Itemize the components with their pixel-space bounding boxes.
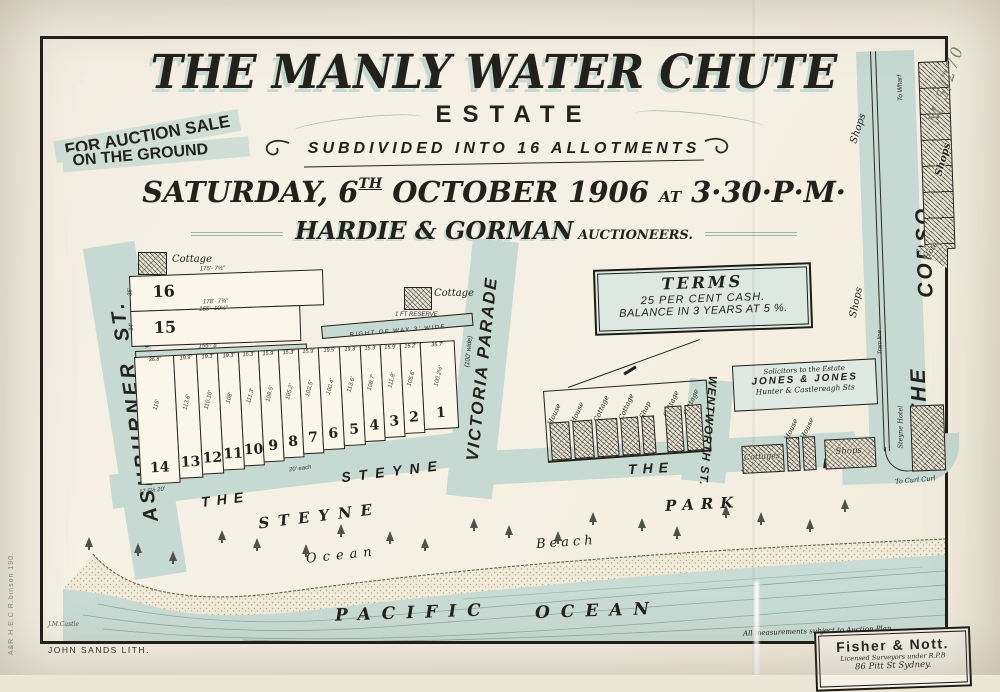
tree-icon	[421, 538, 429, 548]
steyne-right-the: THE	[628, 459, 675, 477]
buildings-block-right: Cottages House House Shops	[740, 413, 877, 474]
lot-number: 8	[288, 434, 299, 450]
paper-crease-highlight	[754, 582, 759, 675]
surveyor-signature: J.M.Castle	[48, 621, 79, 628]
lot-width: 19.5'	[323, 348, 335, 354]
lot-width: 15.3'	[282, 350, 294, 356]
auctioneers-name: HARDIE & GORMAN	[295, 216, 573, 245]
lot-width: 19.3'	[222, 353, 234, 359]
lot-depth: 111.8'	[387, 373, 397, 389]
lot-block-15-16: 175'· 7½" 35' 16 178'· 7¾" 155'· 10¼" 34…	[129, 269, 325, 346]
lot15-top-measure: 155'· 10¼"	[199, 305, 228, 312]
lot16-side-measure: 35'	[127, 288, 133, 296]
building-house: House	[801, 416, 817, 471]
lot-depth: 115'	[152, 399, 161, 411]
lot-number: 5	[349, 421, 360, 437]
lot-width: 19.3'	[201, 354, 213, 360]
cottage-1-label: Cottage	[172, 254, 212, 265]
building-hatch	[641, 415, 657, 454]
steyne-hotel-label: Steyne Hotel	[896, 406, 904, 449]
cottages-block: Cottages	[741, 444, 784, 474]
tree-icon	[638, 518, 646, 528]
date-time: 3·30·P·M·	[681, 175, 846, 209]
surveyors-box: Fisher & Nott. Licensed Surveyors under …	[814, 626, 972, 691]
lot-width: 15.9'	[262, 351, 274, 357]
tree-icon	[673, 526, 681, 536]
lot16-number: 16	[152, 281, 175, 301]
date-mid: OCTOBER 1906	[382, 175, 659, 209]
manly-water-chute-poster: { "header":{ "ribbon":["FOR AUCTION SALE…	[0, 0, 1000, 675]
poster-title: THE MANLY WATER CHUTE	[79, 45, 909, 100]
lot-width: 35.7'	[431, 342, 443, 348]
building-hatch	[572, 420, 595, 459]
lot-number: 12	[202, 450, 222, 467]
building-shop: Shop	[639, 384, 657, 454]
paper-fold	[752, 0, 755, 675]
tree-icon	[806, 519, 814, 529]
cottage-1-block	[138, 252, 167, 275]
date-superscript: TH	[358, 176, 382, 192]
lot-depth: 100.4'	[326, 379, 336, 396]
lot-depth: 110.10'	[204, 390, 215, 410]
building-house: House	[547, 390, 572, 460]
tram-line-label: Tram line	[877, 330, 884, 355]
lot-depth: 100.2½'	[433, 365, 444, 387]
cottage-2-label: Cottage	[434, 288, 474, 299]
cottages-label: Cottages	[744, 451, 781, 462]
lot-number: 3	[389, 413, 400, 429]
lot-number: 1	[436, 405, 447, 421]
building-house: House	[785, 417, 801, 472]
building-hatch	[549, 421, 572, 460]
buildings-block-left: House House Cottage Cottage Shop Cottage…	[543, 380, 712, 463]
right-of-way-3-label: RIGHT OF WAY 3' WIDE	[349, 324, 446, 338]
lot-number: 4	[369, 417, 380, 433]
lot-number: 9	[268, 438, 279, 454]
tree-icon	[505, 525, 513, 535]
tree-icon	[386, 531, 394, 541]
shops-label-lower: Shops	[848, 286, 865, 318]
auction-date: SATURDAY, 6TH OCTOBER 1906 AT 3·30·P·M·	[43, 175, 945, 209]
lot-depth: 113.6'	[183, 394, 193, 411]
lot-number: 6	[328, 425, 339, 441]
lot-width: 15.9'	[302, 349, 314, 355]
building-hatch	[620, 416, 641, 455]
lot-number: 13	[180, 454, 200, 471]
tree-icon	[757, 512, 765, 522]
building-cottage: Cottage	[618, 386, 641, 456]
date-at: AT	[659, 188, 681, 206]
lot15-side-measure: 34'	[129, 322, 135, 330]
lot-depth: 108'	[226, 392, 235, 404]
building-cottage: Cottage	[663, 382, 685, 452]
lot-depth: 113.6'	[347, 377, 357, 394]
lot-15: 155'· 10¼" 34' 15 155'· 8"	[130, 305, 301, 347]
auctioneers-line: HARDIE & GORMAN AUCTIONEERS.	[43, 216, 945, 245]
lot15-number: 15	[153, 317, 176, 337]
steyne-hotel-block	[910, 404, 946, 471]
building-hatch	[802, 436, 817, 471]
building-cottage: Cottage	[593, 387, 620, 457]
lot-width: 19.9'	[179, 355, 191, 361]
tree-icon	[169, 551, 177, 561]
auctioneers-rule-left	[191, 232, 283, 233]
lot-width: 15.9'	[384, 345, 396, 351]
lot-width: 15.2'	[404, 344, 416, 350]
reserve-label: 1 FT RESERVE	[395, 312, 438, 318]
lot-number: 2	[409, 409, 420, 425]
lot16-top-measure: 175'· 7½"	[200, 266, 225, 273]
tree-icon	[337, 524, 345, 534]
lot-number: 10	[243, 441, 263, 458]
lot-width: 19.3'	[344, 347, 356, 353]
tree-icon	[841, 499, 849, 509]
lithographer-credit: JOHN SANDS LITH.	[48, 645, 150, 655]
tree-icon	[253, 538, 261, 548]
lot-number: 14	[150, 459, 170, 476]
building-house: House	[570, 389, 595, 459]
lot-1: 35.7'100.2½'1	[420, 340, 460, 430]
map-frame: ASHBURNER ST. (66' wide) VICTORIA PARADE…	[40, 36, 948, 644]
flourish-right-icon	[703, 135, 733, 164]
lot-depth: 108.5'	[266, 385, 276, 402]
building-cottage: Cottage	[683, 381, 705, 451]
lot-number: 7	[308, 430, 319, 446]
building-hatch	[684, 404, 704, 451]
building-hatch	[595, 418, 620, 457]
lot-width: 15.3'	[364, 346, 376, 352]
tree-icon	[218, 530, 226, 540]
lot-width: 36.8'	[148, 357, 160, 363]
terms-box: TERMS 25 PER CENT CASH. BALANCE IN 3 YEA…	[593, 262, 813, 336]
lot-depth: 103.5'	[305, 381, 315, 398]
tree-icon	[470, 518, 478, 528]
building-hatch	[786, 437, 801, 472]
tree-icon	[134, 543, 142, 553]
auctioneers-title: AUCTIONEERS.	[574, 228, 693, 243]
subdivided-rule	[304, 160, 704, 168]
lot-width: 15.3'	[243, 352, 255, 358]
lot-number: 11	[223, 445, 243, 462]
lot-depth: 108.7'	[367, 374, 377, 391]
tree-icon	[589, 512, 597, 522]
street-label-victoria: VICTORIA PARADE	[463, 275, 502, 462]
collection-stamp: A&R H.E.C R.binson 190.	[8, 552, 15, 655]
shops-block: Shops	[824, 437, 877, 470]
tree-icon	[85, 537, 93, 547]
auctioneers-rule-right	[705, 232, 797, 233]
flourish-left-icon	[261, 137, 291, 166]
lot-depth: 111.3'	[246, 388, 256, 404]
lot-depth: 105.6'	[407, 370, 417, 387]
cottage-2-block	[404, 287, 432, 310]
lot-depth: 105.2'	[286, 383, 296, 400]
date-pre: SATURDAY, 6	[142, 175, 358, 209]
shops-label: Shops	[835, 446, 862, 457]
